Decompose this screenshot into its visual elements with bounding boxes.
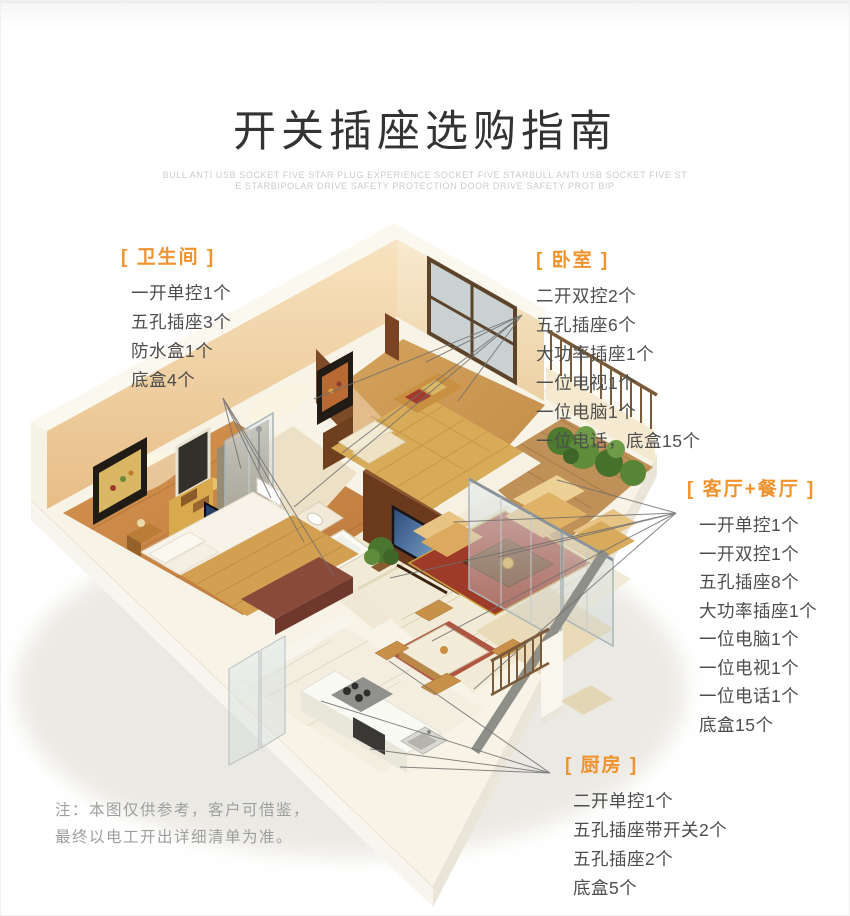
spec-item: 五孔插座6个 xyxy=(536,311,700,340)
spec-item: 底盒4个 xyxy=(131,366,231,395)
spec-item: 一开单控1个 xyxy=(699,511,817,540)
note-line-2: 最终以电工开出详细清单为准。 xyxy=(55,824,310,851)
section-label-bathroom: [ 卫生间 ] xyxy=(121,242,231,269)
section-label-kitchen: [ 厨房 ] xyxy=(565,750,727,777)
spec-item: 一位电话1个 xyxy=(699,682,817,711)
section-bathroom: [ 卫生间 ] 一开单控1个五孔插座3个防水盒1个底盒4个 xyxy=(121,242,231,395)
subtitle: BULL ANTI USB SOCKET FIVE STAR PLUG EXPE… xyxy=(1,170,849,192)
spec-item: 一位电视1个 xyxy=(699,654,817,683)
corner-column xyxy=(385,313,399,361)
header: 开关插座选购指南 xyxy=(1,97,849,159)
section-bedroom: [ 卧室 ] 二开双控2个五孔插座6个大功率插座1个一位电视1个一位电脑1个一位… xyxy=(536,245,700,456)
section-label-living-dining: [ 客厅+餐厅 ] xyxy=(687,474,817,501)
section-kitchen: [ 厨房 ] 二开单控1个五孔插座带开关2个五孔插座2个底盒5个 xyxy=(565,750,727,903)
spec-item: 二开单控1个 xyxy=(573,787,727,816)
spec-item: 五孔插座8个 xyxy=(699,568,817,597)
spec-item: 一开双控1个 xyxy=(699,540,817,569)
spec-item: 底盒15个 xyxy=(699,711,817,740)
spec-item: 底盒5个 xyxy=(573,874,727,903)
note-line-1: 注：本图仅供参考，客户可借鉴， xyxy=(55,797,310,824)
spec-item: 防水盒1个 xyxy=(131,337,231,366)
section-items-bedroom: 二开双控2个五孔插座6个大功率插座1个一位电视1个一位电脑1个一位电话，底盒15… xyxy=(536,282,700,456)
section-items-kitchen: 二开单控1个五孔插座带开关2个五孔插座2个底盒5个 xyxy=(573,787,727,903)
subtitle-line-1: BULL ANTI USB SOCKET FIVE STAR PLUG EXPE… xyxy=(1,170,849,181)
section-living-dining: [ 客厅+餐厅 ] 一开单控1个一开双控1个五孔插座8个大功率插座1个一位电脑1… xyxy=(687,474,817,739)
spec-item: 一位电脑1个 xyxy=(536,398,700,427)
spec-item: 一位电视1个 xyxy=(536,369,700,398)
spec-item: 大功率插座1个 xyxy=(536,340,700,369)
spec-item: 一开单控1个 xyxy=(131,279,231,308)
spec-item: 一位电话，底盒15个 xyxy=(536,427,700,456)
page-title: 开关插座选购指南 xyxy=(1,97,849,159)
spec-item: 五孔插座带开关2个 xyxy=(573,816,727,845)
section-label-bedroom: [ 卧室 ] xyxy=(536,245,700,272)
infographic-canvas: 开关插座选购指南 BULL ANTI USB SOCKET FIVE STAR … xyxy=(0,0,850,916)
spec-item: 大功率插座1个 xyxy=(699,597,817,626)
spec-item: 五孔插座3个 xyxy=(131,308,231,337)
subtitle-line-2: E STARBIPOLAR DRIVE SAFETY PROTECTION DO… xyxy=(1,181,849,192)
spec-item: 二开双控2个 xyxy=(536,282,700,311)
spec-item: 一位电脑1个 xyxy=(699,625,817,654)
section-items-living-dining: 一开单控1个一开双控1个五孔插座8个大功率插座1个一位电脑1个一位电视1个一位电… xyxy=(699,511,817,739)
spec-item: 五孔插座2个 xyxy=(573,845,727,874)
section-items-bathroom: 一开单控1个五孔插座3个防水盒1个底盒4个 xyxy=(131,279,231,395)
disclaimer-note: 注：本图仅供参考，客户可借鉴， 最终以电工开出详细清单为准。 xyxy=(55,797,310,851)
